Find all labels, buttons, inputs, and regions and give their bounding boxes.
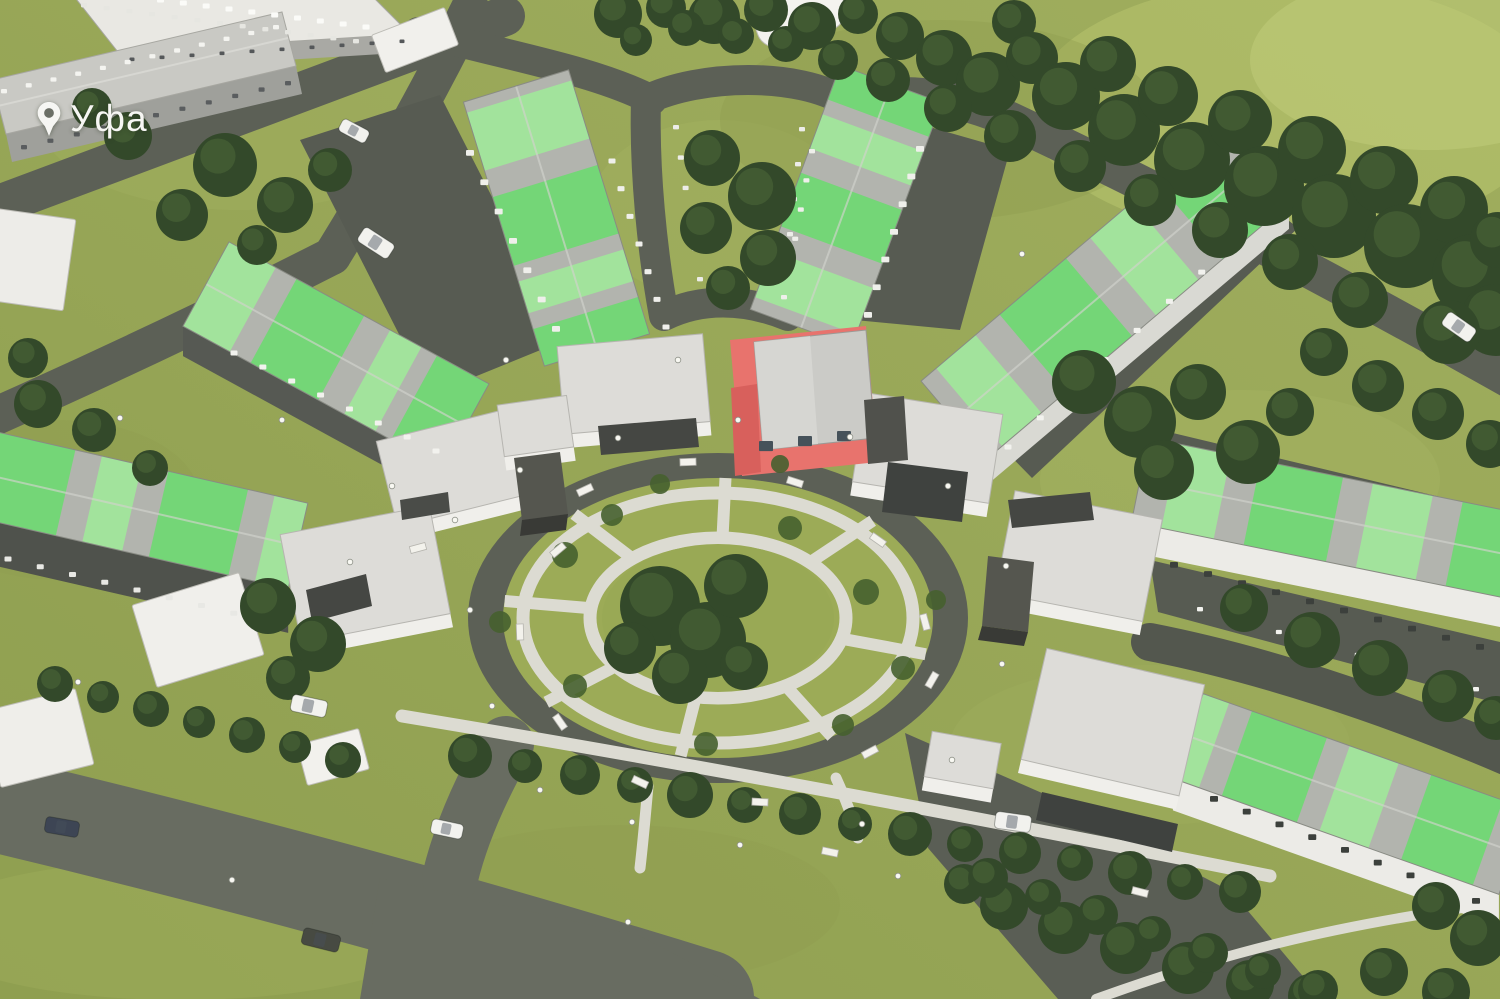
unit-dot <box>21 145 27 149</box>
unit-dot <box>101 580 108 585</box>
unit-dot <box>271 13 278 18</box>
lamppost <box>347 559 353 565</box>
tree-highlight <box>1272 392 1298 418</box>
unit-dot <box>1374 617 1382 623</box>
unit-dot <box>1197 607 1203 611</box>
unit-dot <box>1198 270 1205 275</box>
tree-highlight <box>1428 674 1457 703</box>
unit-dot <box>618 186 625 191</box>
tree-highlight <box>1141 445 1174 478</box>
unit-dot <box>1276 822 1284 828</box>
tree-highlight <box>296 621 327 652</box>
unit-dot <box>1407 873 1415 879</box>
tree-highlight <box>1306 332 1332 358</box>
unit-dot <box>1442 635 1450 641</box>
unit-dot <box>1276 630 1282 634</box>
bench <box>752 798 768 806</box>
tree-highlight <box>233 720 253 740</box>
unit-dot <box>1476 644 1484 650</box>
unit-dot <box>125 60 131 64</box>
tree-highlight <box>1029 882 1049 902</box>
shed-building <box>0 205 76 311</box>
unit-dot <box>1306 598 1314 604</box>
lamppost <box>737 842 743 848</box>
tree-highlight <box>686 206 715 235</box>
tree-highlight <box>137 694 157 714</box>
tree-highlight <box>672 776 697 801</box>
lamppost <box>625 919 631 925</box>
dark-band <box>514 452 568 520</box>
unit-dot <box>916 146 924 152</box>
lamppost <box>503 357 509 363</box>
tree-highlight <box>162 193 191 222</box>
unit-dot <box>509 238 517 244</box>
unit-dot <box>890 229 898 235</box>
tree-highlight <box>794 6 820 32</box>
tree-highlight <box>20 384 46 410</box>
tree-highlight <box>722 21 742 41</box>
unit-dot <box>330 36 336 40</box>
lamppost <box>949 757 955 763</box>
tree-highlight <box>711 559 746 594</box>
lamppost <box>389 483 395 489</box>
tree-highlight <box>842 810 861 829</box>
lamppost <box>1019 251 1025 257</box>
unit-dot <box>538 297 546 303</box>
plaza-radial-path <box>722 478 725 538</box>
bench-seat <box>516 624 524 640</box>
tree-highlight <box>949 867 971 889</box>
tree-highlight <box>1224 875 1247 898</box>
unit-dot <box>346 407 353 412</box>
tree-highlight <box>624 27 642 45</box>
unit-dot <box>1005 445 1012 450</box>
tree-highlight <box>1061 848 1081 868</box>
lamppost <box>945 483 951 489</box>
tree-highlight <box>1130 178 1159 207</box>
tree-highlight <box>1171 867 1191 887</box>
unit-dot <box>149 54 155 58</box>
unit-dot <box>104 6 110 10</box>
lamppost <box>489 703 495 709</box>
unit-dot <box>262 27 268 31</box>
unit-dot <box>285 81 291 85</box>
tree-highlight <box>1303 973 1325 995</box>
lamppost <box>895 873 901 879</box>
unit-dot <box>799 127 805 131</box>
unit-dot <box>310 46 315 50</box>
tree-highlight <box>283 734 301 752</box>
bush <box>891 656 915 680</box>
tree-highlight <box>1290 617 1321 648</box>
tree-highlight <box>871 62 895 86</box>
unit-dot <box>280 48 285 52</box>
tree-highlight <box>1418 392 1447 421</box>
unit-dot <box>340 22 347 27</box>
tree-highlight <box>1012 36 1041 65</box>
unit-dot <box>1134 328 1141 333</box>
unit-dot <box>224 37 230 41</box>
unit-dot <box>495 209 503 215</box>
tree-highlight <box>271 660 295 684</box>
tree-highlight <box>1112 392 1152 432</box>
unit-dot <box>697 277 703 281</box>
unit-dot <box>308 33 314 37</box>
unit-dot <box>203 4 210 9</box>
tree-highlight <box>263 182 294 213</box>
unit-dot <box>134 588 141 593</box>
lamppost <box>615 435 621 441</box>
unit-dot <box>787 232 793 236</box>
unit-dot <box>433 449 440 454</box>
unit-dot <box>798 207 804 211</box>
shed-roof <box>0 205 76 311</box>
unit-dot <box>294 16 301 21</box>
tree-highlight <box>1223 425 1258 460</box>
unit-dot <box>75 72 81 76</box>
unit-dot <box>174 48 180 52</box>
lamppost <box>999 661 1005 667</box>
lamppost <box>735 417 741 423</box>
unit-dot <box>232 94 238 98</box>
tree-highlight <box>990 114 1019 143</box>
unit-dot <box>803 178 809 182</box>
tree-highlight <box>1176 369 1207 400</box>
unit-dot <box>240 24 246 28</box>
unit-dot <box>198 603 205 608</box>
unit-dot <box>1408 626 1416 632</box>
tree-highlight <box>1139 919 1159 939</box>
tree-highlight <box>1366 952 1392 978</box>
tree-highlight <box>731 790 751 810</box>
unit-dot <box>1340 608 1348 614</box>
tree-highlight <box>1249 956 1269 976</box>
bush <box>601 504 623 526</box>
unit-dot <box>1341 847 1349 853</box>
unit-dot <box>375 421 382 426</box>
unit-dot <box>404 435 411 440</box>
scene-svg <box>0 0 1500 999</box>
dark-band <box>864 396 908 464</box>
unit-dot <box>1243 809 1251 815</box>
tree-highlight <box>711 270 735 294</box>
unit-dot <box>873 284 881 290</box>
unit-dot <box>194 18 200 22</box>
bench <box>516 624 524 640</box>
tree-highlight <box>1338 277 1369 308</box>
tree-highlight <box>736 168 773 205</box>
tree-highlight <box>1145 71 1178 104</box>
unit-dot <box>609 159 616 164</box>
unit-dot <box>317 393 324 398</box>
tree-highlight <box>1086 41 1117 72</box>
tree-highlight <box>13 341 35 363</box>
car-windshield <box>55 820 67 834</box>
location-label-text: Уфа <box>70 98 148 140</box>
unit-dot <box>627 214 634 219</box>
tree-highlight <box>726 646 752 672</box>
unit-dot <box>792 237 798 241</box>
lamppost <box>629 819 635 825</box>
tree-highlight <box>930 88 956 114</box>
tree-highlight <box>1040 68 1077 105</box>
unit-dot <box>226 7 233 12</box>
tree-highlight <box>1358 152 1395 189</box>
tree-highlight <box>187 709 205 727</box>
unit-dot <box>153 113 159 117</box>
unit-dot <box>220 52 225 56</box>
unit-dot <box>864 312 872 318</box>
unit-dot <box>157 0 164 3</box>
tree-highlight <box>823 43 845 65</box>
tree-highlight <box>1358 364 1387 393</box>
tree-highlight <box>922 35 953 66</box>
unit-dot <box>881 257 889 263</box>
bush <box>563 674 587 698</box>
lamppost <box>229 877 235 883</box>
lamppost <box>452 517 458 523</box>
location-label: Уфа <box>36 98 148 140</box>
unit-dot <box>206 100 212 104</box>
unit-dot <box>250 50 255 54</box>
unit-dot <box>523 267 531 273</box>
unit-dot <box>552 326 560 332</box>
tree-highlight <box>565 758 587 780</box>
tree-highlight <box>1302 181 1348 227</box>
unit-dot <box>1272 589 1280 595</box>
unit-dot <box>1166 299 1173 304</box>
unit-dot <box>217 21 223 25</box>
unit-dot <box>259 365 266 370</box>
tree-highlight <box>658 653 689 684</box>
tree-highlight <box>91 684 109 702</box>
unit-dot <box>340 44 345 48</box>
unit-dot <box>179 107 185 111</box>
unit-dot <box>798 436 812 446</box>
lamppost <box>1003 563 1009 569</box>
tree-highlight <box>329 745 349 765</box>
unit-dot <box>26 83 32 87</box>
unit-dot <box>1210 796 1218 802</box>
unit-dot <box>1374 860 1382 866</box>
unit-dot <box>353 39 359 43</box>
unit-dot <box>1170 562 1178 568</box>
unit-dot <box>370 42 375 46</box>
unit-dot <box>809 149 815 153</box>
plaza-radial-path <box>505 601 591 608</box>
unit-dot <box>466 150 474 156</box>
lamppost <box>517 467 523 473</box>
unit-dot <box>1473 687 1479 691</box>
location-pin-icon <box>36 101 62 137</box>
unit-dot <box>1037 415 1044 420</box>
tree-highlight <box>512 752 531 771</box>
car-windshield <box>1006 815 1019 829</box>
tree-highlight <box>453 738 477 762</box>
unit-dot <box>907 174 915 180</box>
tree-highlight <box>1096 100 1136 140</box>
unit-dot <box>248 10 255 15</box>
lamppost <box>847 434 853 440</box>
unit-dot <box>636 242 643 247</box>
tree-highlight <box>963 57 998 92</box>
tree-highlight <box>246 583 277 614</box>
bush <box>489 611 511 633</box>
tree-highlight <box>1163 128 1205 170</box>
bush <box>771 455 789 473</box>
bush <box>694 732 718 756</box>
lamppost <box>537 787 543 793</box>
unit-dot <box>69 572 76 577</box>
tree-highlight <box>1428 972 1454 998</box>
tree-highlight <box>679 608 721 650</box>
tree-highlight <box>1286 122 1323 159</box>
tree-highlight <box>1233 153 1277 197</box>
bush <box>832 714 854 736</box>
unit-dot <box>190 54 195 58</box>
tree-highlight <box>1060 144 1089 173</box>
lamppost <box>859 821 865 827</box>
tree-highlight <box>951 829 971 849</box>
unit-dot <box>149 12 155 16</box>
tree-highlight <box>1198 207 1229 238</box>
unit-dot <box>317 19 324 24</box>
tree-highlight <box>1004 836 1027 859</box>
tree-highlight <box>746 235 777 266</box>
tree-highlight <box>136 453 156 473</box>
unit-dot <box>166 595 173 600</box>
lamppost <box>75 679 81 685</box>
unit-dot <box>285 30 291 34</box>
tree-highlight <box>1059 355 1094 390</box>
bench-seat <box>752 798 768 806</box>
unit-dot <box>678 155 684 159</box>
hub-building <box>922 731 1001 802</box>
aerial-render-image: Уфа <box>0 0 1500 999</box>
tree-highlight <box>313 152 337 176</box>
unit-dot <box>1204 571 1212 577</box>
unit-dot <box>654 297 661 302</box>
tree-highlight <box>973 861 995 883</box>
unit-dot <box>1308 834 1316 840</box>
red-hub-building <box>730 326 878 476</box>
tree-highlight <box>1113 855 1137 879</box>
bench <box>680 458 696 466</box>
tree-highlight <box>1374 211 1420 257</box>
tree-highlight <box>784 797 807 820</box>
unit-dot <box>5 557 12 562</box>
tree-highlight <box>1226 588 1252 614</box>
red-building-corner <box>731 384 761 476</box>
tree-highlight <box>77 412 101 436</box>
unit-dot <box>172 15 178 19</box>
bush <box>778 516 802 540</box>
tree-highlight <box>1472 424 1498 450</box>
unit-dot <box>480 179 488 185</box>
hub-roof <box>497 395 574 456</box>
bench-seat <box>680 458 696 466</box>
unit-dot <box>160 56 165 60</box>
tree-highlight <box>1215 95 1250 130</box>
unit-dot <box>180 1 187 6</box>
unit-dot <box>683 186 689 190</box>
bush <box>926 590 946 610</box>
unit-dot <box>645 269 652 274</box>
unit-dot <box>273 25 279 29</box>
bush <box>853 579 879 605</box>
dark-band <box>882 462 968 522</box>
bush <box>650 474 670 494</box>
unit-dot <box>199 42 205 46</box>
unit-dot <box>288 379 295 384</box>
unit-dot <box>50 77 56 81</box>
unit-dot <box>81 3 87 7</box>
unit-dot <box>1 89 7 93</box>
unit-dot <box>781 295 787 299</box>
tree-highlight <box>242 228 264 250</box>
unit-dot <box>759 441 773 451</box>
tree-highlight <box>1456 915 1487 946</box>
tree-highlight <box>200 138 235 173</box>
lamppost <box>467 607 473 613</box>
tree-highlight <box>1418 886 1444 912</box>
lamppost <box>117 415 123 421</box>
unit-dot <box>231 351 238 356</box>
unit-dot <box>259 87 265 91</box>
tree-highlight <box>41 669 61 689</box>
tree-highlight <box>610 626 639 655</box>
unit-dot <box>126 9 132 13</box>
unit-dot <box>795 162 801 166</box>
tree-highlight <box>882 16 908 42</box>
tree-highlight <box>1193 936 1215 958</box>
unit-dot <box>400 40 405 44</box>
tree-highlight <box>1358 645 1389 676</box>
tree-highlight <box>1428 182 1465 219</box>
unit-dot <box>899 201 907 207</box>
unit-dot <box>673 125 679 129</box>
unit-dot <box>37 564 44 569</box>
tree-highlight <box>1268 239 1299 270</box>
unit-dot <box>363 25 370 30</box>
unit-dot <box>248 31 254 35</box>
tree-highlight <box>629 573 673 617</box>
lamppost <box>279 417 285 423</box>
unit-dot <box>663 325 670 330</box>
tree-highlight <box>772 29 792 49</box>
unit-dot <box>230 611 237 616</box>
unit-dot <box>100 66 106 70</box>
red-building-roof-highlight <box>754 336 818 450</box>
unit-dot <box>1472 898 1480 904</box>
tree-highlight <box>1083 898 1105 920</box>
lamppost <box>675 357 681 363</box>
tree-highlight <box>997 4 1021 28</box>
tree-highlight <box>690 135 721 166</box>
tree-highlight <box>672 13 692 33</box>
tree-highlight <box>893 816 917 840</box>
